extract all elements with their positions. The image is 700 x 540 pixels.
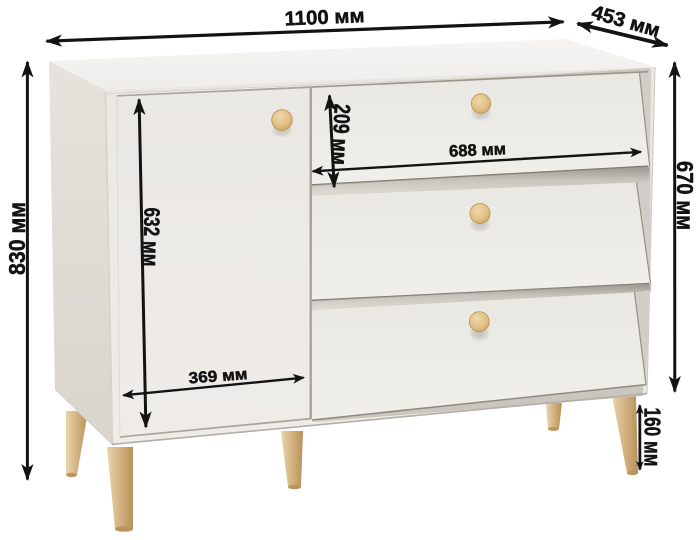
svg-text:209 мм: 209 мм bbox=[327, 103, 355, 165]
svg-text:670 мм: 670 мм bbox=[672, 161, 698, 230]
svg-text:1100 мм: 1100 мм bbox=[284, 5, 365, 30]
svg-text:830 мм: 830 мм bbox=[4, 202, 30, 275]
svg-text:160 мм: 160 мм bbox=[639, 408, 665, 467]
svg-text:632 мм: 632 мм bbox=[138, 207, 164, 267]
svg-text:688 мм: 688 мм bbox=[449, 140, 507, 160]
